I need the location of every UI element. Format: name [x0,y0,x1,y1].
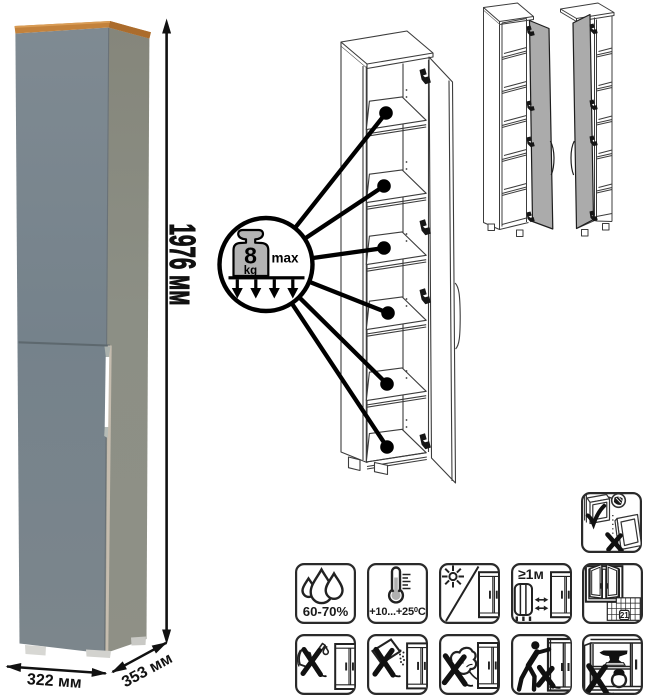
svg-text:60-70%: 60-70% [303,604,349,619]
svg-text:≥1м: ≥1м [518,566,544,582]
svg-text:1976 мм: 1976 мм [161,223,202,305]
svg-text:kg: kg [244,265,257,277]
svg-text:max: max [272,251,300,266]
svg-text:21: 21 [620,611,629,620]
svg-text:322 мм: 322 мм [26,671,82,692]
svg-text:+10...+250C: +10...+250C [369,605,426,618]
svg-text:353 мм: 353 мм [119,650,175,691]
